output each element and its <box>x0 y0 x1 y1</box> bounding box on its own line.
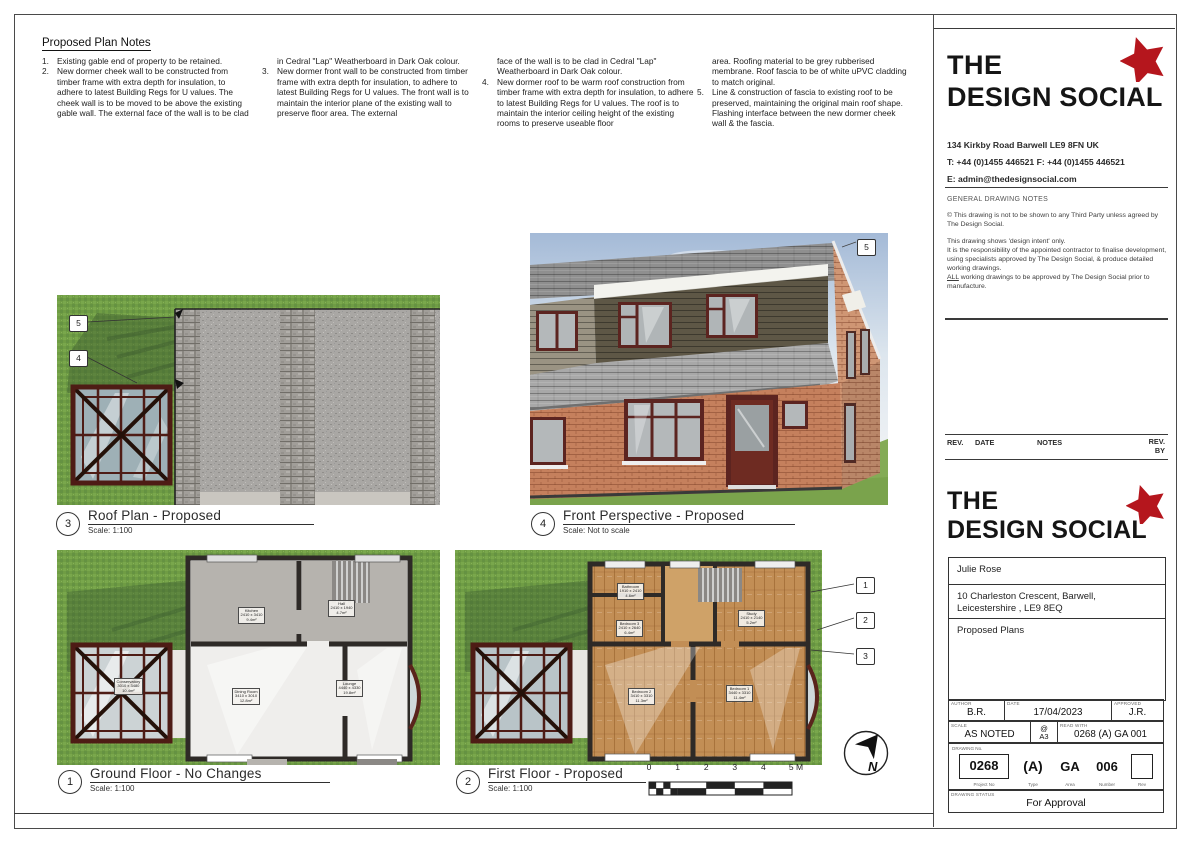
front-perspective-drawing <box>530 233 888 505</box>
caption-title: Roof Plan - Proposed <box>88 508 314 523</box>
conservatory <box>473 645 570 741</box>
brand-phone: T: +44 (0)1455 446521 F: +44 (0)1455 446… <box>947 154 1125 171</box>
room-label-lounge: Lounge4440 x 433019.8m² <box>336 680 363 697</box>
dormer-window-2 <box>706 294 758 338</box>
titleblock-top-line <box>934 28 1175 29</box>
drawing-type: (A) <box>1015 754 1051 779</box>
caption-title: First Floor - Proposed <box>488 766 646 781</box>
callout-marker-1: 1 <box>856 577 875 594</box>
room-label-bedroom-3: Bedroom 32410 x 26406.4m² <box>616 620 643 637</box>
caption-rule <box>90 782 330 783</box>
caption-number: 4 <box>531 512 555 536</box>
drawing-sheet-number: 006 <box>1089 754 1125 779</box>
caption-rule <box>488 782 646 783</box>
caption-number: 2 <box>456 770 480 794</box>
project-number: 0268 <box>959 754 1009 779</box>
room-label-study: Study2410 x 21405.2m² <box>738 610 765 627</box>
caption-scale: Scale: 1:100 <box>488 784 646 793</box>
note-item: 1.Existing gable end of property to be r… <box>42 56 252 66</box>
north-arrow: N <box>842 729 890 777</box>
conservatory-roof <box>73 387 170 483</box>
meta-row-scale: SCALE AS NOTED @ A3 READ WITH 0268 (A) G… <box>948 721 1164 743</box>
room-label-dining-room: Dining Room3410 x 301012.8m² <box>232 688 260 705</box>
project-address: 10 Charleston Crescent, Barwell, Leicest… <box>949 585 1165 619</box>
general-notes: © This drawing is not to be shown to any… <box>947 211 1168 291</box>
first-floor-drawing <box>455 550 878 765</box>
revision-value <box>1131 754 1153 779</box>
caption-rule <box>563 524 795 525</box>
drawing-area: GA <box>1055 754 1085 779</box>
caption-number: 3 <box>56 512 80 536</box>
stairs <box>698 568 742 602</box>
rev-table-top-line <box>945 434 1168 435</box>
callout-marker-5: 5 <box>857 239 876 256</box>
notes-column-2: in Cedral "Lap" Weatherboard in Dark Oak… <box>262 56 472 118</box>
caption-title: Ground Floor - No Changes <box>90 766 330 781</box>
notes-column-4: area. Roofing material to be grey rubber… <box>697 56 909 129</box>
main-roof <box>175 309 440 505</box>
room-label-conservatory: Conservatory3010 x 348010.4m² <box>114 678 143 695</box>
scale-cell: SCALE AS NOTED <box>949 722 1031 742</box>
room-label-bedroom-2: Bedroom 23410 x 331011.3m² <box>628 688 655 705</box>
client-name: Julie Rose <box>949 558 1165 585</box>
general-note-copyright: © This drawing is not to be shown to any… <box>947 211 1168 229</box>
callout-marker-4: 4 <box>69 350 88 367</box>
revision-table-header: REV. DATE NOTES REV.BY <box>947 438 1165 455</box>
notes-column-3: face of the wall is to be clad in Cedral… <box>482 56 694 129</box>
note-item: 5.Line & construction of fascia to exist… <box>697 87 909 129</box>
notes-heading: Proposed Plan Notes <box>42 37 151 51</box>
callout-marker-5: 5 <box>69 315 88 332</box>
read-with-cell: READ WITH 0268 (A) GA 001 <box>1058 722 1163 742</box>
drawing-sheet: Proposed Plan Notes 1.Existing gable end… <box>0 0 1190 842</box>
small-window <box>782 401 808 429</box>
brand-line2: DESIGN SOCIAL <box>947 80 1167 114</box>
rev-table-bottom-line <box>945 459 1168 460</box>
callout-marker-2: 2 <box>856 612 875 629</box>
titleblock-divider-line <box>933 14 934 827</box>
note-item: in Cedral "Lap" Weatherboard in Dark Oak… <box>262 56 472 66</box>
building <box>188 555 419 765</box>
note-item: 2.New dormer cheek wall to be constructe… <box>42 66 252 118</box>
north-letter: N <box>868 759 878 774</box>
note-item: area. Roofing material to be grey rubber… <box>697 56 909 87</box>
notes-column-1: 1.Existing gable end of property to be r… <box>42 56 252 118</box>
dormer-window-1 <box>618 302 672 348</box>
approved-cell: APPROVED J.R. <box>1112 700 1163 720</box>
connector-floor <box>570 650 590 738</box>
caption-perspective: 4 Front Perspective - Proposed Scale: No… <box>531 508 795 536</box>
neighbour-upper <box>530 297 596 375</box>
brand-address: 134 Kirkby Road Barwell LE9 8FN UK <box>947 137 1125 154</box>
house <box>530 241 880 499</box>
caption-number: 1 <box>58 770 82 794</box>
general-note-responsibility: It is the responsibility of the appointe… <box>947 246 1168 273</box>
caption-title: Front Perspective - Proposed <box>563 508 795 523</box>
room-label-bedroom-1: Bedroom 13440 x 331011.4m² <box>726 685 753 702</box>
caption-scale: Scale: 1:100 <box>90 784 330 793</box>
paper-size-cell: @ A3 <box>1031 722 1058 742</box>
ground-floor-drawing <box>57 550 440 765</box>
brand-star-icon <box>1126 484 1166 524</box>
room-label-hall: Hall2410 x 19404.7m² <box>328 600 355 617</box>
stairs <box>332 561 370 603</box>
scale-bar: 0 1 2 3 4 5 M <box>641 762 811 800</box>
brand-star-icon <box>1120 36 1166 82</box>
drawing-status-value: For Approval <box>949 797 1163 809</box>
project-info-box: Julie Rose 10 Charleston Crescent, Barwe… <box>948 557 1166 701</box>
divider-line <box>945 187 1168 188</box>
general-note-approval: ALL working drawings to be approved by T… <box>947 273 1168 291</box>
connector-floor <box>170 650 188 738</box>
contact-block: 134 Kirkby Road Barwell LE9 8FN UK T: +4… <box>947 137 1125 188</box>
callout-marker-3: 3 <box>856 648 875 665</box>
caption-scale: Scale: 1:100 <box>88 526 314 535</box>
main-bottom-line <box>14 813 934 814</box>
brand-email: E: admin@thedesignsocial.com <box>947 171 1125 188</box>
drawing-number-box: DRAWING No. 0268 (A) GA 006 Project No T… <box>948 743 1164 790</box>
roof-plan-drawing <box>57 295 440 505</box>
room-label-bathroom: Bathroom1910 x 24104.6m² <box>617 583 644 600</box>
caption-roof-plan: 3 Roof Plan - Proposed Scale: 1:100 <box>56 508 314 536</box>
caption-rule <box>88 524 314 525</box>
caption-scale: Scale: Not to scale <box>563 526 795 535</box>
front-door <box>726 395 778 489</box>
main-window <box>622 399 706 465</box>
general-notes-heading: GENERAL DRAWING NOTES <box>947 196 1048 203</box>
date-cell: DATE 17/04/2023 <box>1005 700 1112 720</box>
caption-ground-floor: 1 Ground Floor - No Changes Scale: 1:100 <box>58 766 330 794</box>
drawing-status-box: DRAWING STATUS For Approval <box>948 790 1164 813</box>
neighbour-window-partial <box>530 417 568 469</box>
author-cell: AUTHOR B.R. <box>949 700 1005 720</box>
room-label-kitchen: Kitchen2410 x 34109.4m² <box>238 607 265 624</box>
caption-first-floor: 2 First Floor - Proposed Scale: 1:100 <box>456 766 646 794</box>
kitchen-floor <box>191 561 297 642</box>
general-note-intent: This drawing shows 'design intent' only. <box>947 237 1168 246</box>
meta-row-author: AUTHOR B.R. DATE 17/04/2023 APPROVED J.R… <box>948 699 1164 721</box>
drawing-title: Proposed Plans <box>949 619 1165 698</box>
note-item: 4.New dormer roof to be warm roof constr… <box>482 77 694 129</box>
divider-line <box>945 318 1168 320</box>
note-item: 3.New dormer front wall to be constructe… <box>262 66 472 118</box>
note-item: face of the wall is to be clad in Cedral… <box>482 56 694 77</box>
